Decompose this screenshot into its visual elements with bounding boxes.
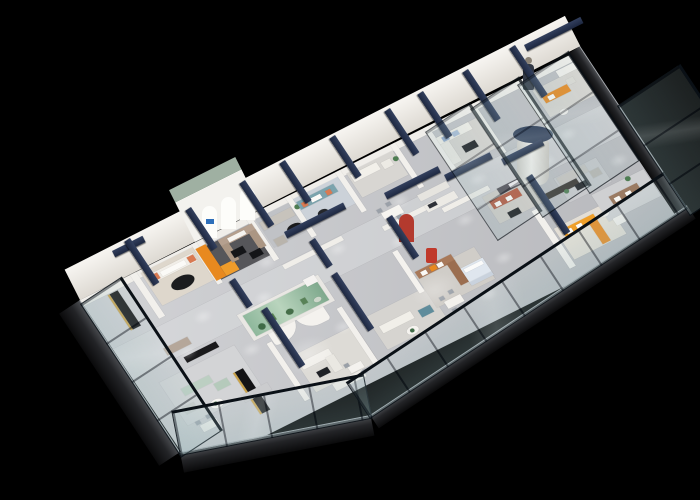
stage [0, 0, 700, 500]
arch-blue-logo [206, 219, 214, 224]
arch-lightbox [221, 197, 236, 229]
spotlight-glow [239, 340, 264, 360]
red-logo-sign [426, 248, 437, 263]
spotlight-glow [491, 248, 516, 268]
